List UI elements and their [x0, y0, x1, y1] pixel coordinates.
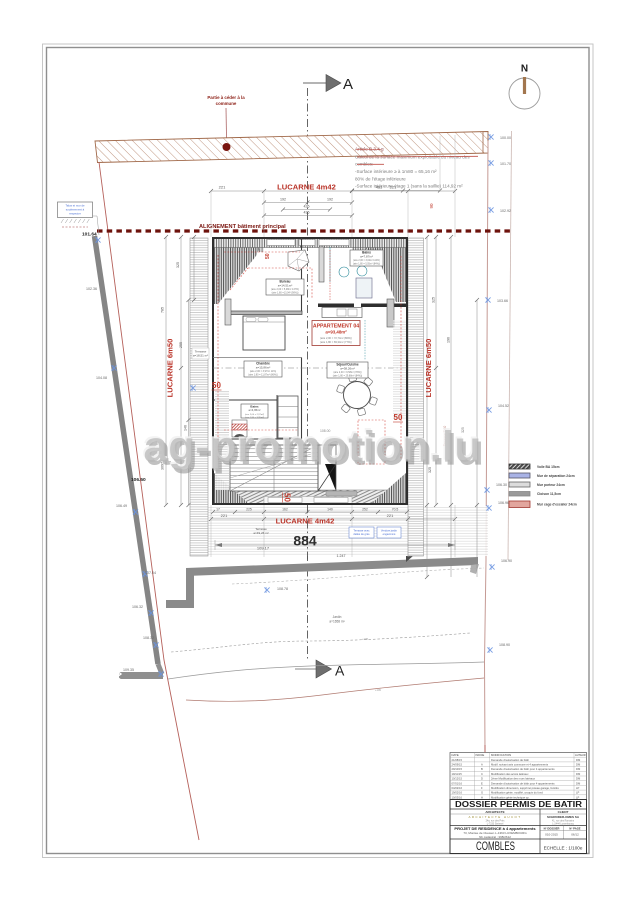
svg-text:ECHELLE : 1/100e: ECHELLE : 1/100e — [544, 846, 583, 851]
svg-text:2ème Modification des murs lat: 2ème Modification des murs latéraux — [491, 777, 536, 781]
svg-text:Voile BA 15cm: Voile BA 15cm — [537, 465, 560, 469]
svg-text:101.70: 101.70 — [500, 162, 511, 166]
svg-text:140: 140 — [327, 508, 333, 512]
svg-text:L-7333 Steinsel: L-7333 Steinsel — [487, 822, 504, 825]
svg-text:100.00: 100.00 — [500, 136, 511, 140]
svg-text:Verdure jardin: Verdure jardin — [381, 529, 398, 533]
svg-text:LUCARNE 6m50: LUCARNE 6m50 — [166, 339, 175, 398]
svg-text:252: 252 — [362, 508, 368, 512]
svg-text:Cloison 11,5cm: Cloison 11,5cm — [537, 492, 561, 496]
svg-text:06/12: 06/12 — [571, 833, 579, 837]
svg-text:+109: +109 — [375, 688, 381, 692]
svg-text:LP: LP — [576, 795, 579, 799]
svg-text:C: C — [481, 772, 483, 776]
svg-text:255: 255 — [179, 342, 183, 348]
svg-text:221: 221 — [221, 513, 228, 518]
svg-text:Mur de séparation 24cm: Mur de séparation 24cm — [537, 474, 575, 478]
svg-text:commune: commune — [216, 101, 237, 106]
svg-text:10/12/15: 10/12/15 — [452, 777, 463, 781]
svg-text:106.49: 106.49 — [116, 504, 127, 508]
svg-text:436: 436 — [304, 211, 310, 215]
svg-text:103.66: 103.66 — [497, 299, 508, 303]
svg-text:106.50: 106.50 — [131, 477, 146, 483]
svg-text:102.92: 102.92 — [500, 209, 511, 213]
svg-text:a=15,86m²: a=15,86m² — [256, 365, 270, 369]
svg-text:Modification dimension, suppri: Modification dimension, supprimé poteau … — [491, 786, 559, 790]
svg-text:MODIFICATION: MODIFICATION — [491, 753, 511, 757]
svg-text:dalles de grès: dalles de grès — [353, 532, 370, 536]
svg-text:426: 426 — [304, 205, 310, 209]
svg-text:Nb cadastral : 398/2612: Nb cadastral : 398/2612 — [479, 835, 511, 839]
svg-text:50: 50 — [283, 493, 292, 502]
svg-text:(aire 2,00 = 2,97m²): (aire 2,00 = 2,97m²) — [245, 413, 265, 416]
svg-text:a=7,87m²: a=7,87m² — [360, 254, 373, 258]
svg-text:221: 221 — [219, 185, 226, 190]
svg-text:325: 325 — [432, 297, 436, 303]
svg-text:L-2444 Luxembourg: L-2444 Luxembourg — [552, 822, 574, 825]
svg-text:a=18,51 m²: a=18,51 m² — [193, 354, 208, 358]
svg-text:1.247: 1.247 — [337, 554, 346, 558]
svg-text:Demande d'autorisation de bâti: Demande d'autorisation de bâtir pour 4 a… — [491, 781, 555, 785]
svg-text:COMBLES: COMBLES — [476, 841, 515, 853]
svg-text:LUCARNE 4m42: LUCARNE 4m42 — [276, 517, 335, 526]
svg-text:192: 192 — [280, 198, 286, 202]
svg-text:221: 221 — [387, 513, 394, 518]
svg-text:a=4,95m²: a=4,95m² — [249, 408, 261, 412]
svg-text:Demande d'autorisation de bâti: Demande d'autorisation de bâtir pour 4 a… — [491, 767, 555, 771]
svg-text:106.30: 106.30 — [496, 483, 507, 487]
svg-text:LUCARNE 4m42: LUCARNE 4m42 — [277, 183, 336, 192]
svg-text:a=14,51m²: a=14,51m² — [278, 283, 292, 287]
svg-text:Partie à céder à la: Partie à céder à la — [207, 95, 245, 100]
svg-text:785: 785 — [161, 307, 165, 313]
svg-text:(aire 1,80 =13,04² (90%)): (aire 1,80 =13,04² (90%)) — [272, 291, 299, 294]
svg-text:Modification génie technique o: Modification génie technique op. — [491, 795, 530, 799]
svg-text:a=38,26m²: a=38,26m² — [340, 366, 354, 370]
svg-text:H: H — [481, 795, 483, 799]
svg-text:50: 50 — [212, 381, 221, 390]
svg-text:21/08/15: 21/08/15 — [452, 758, 463, 762]
svg-text:Terrasse avec: Terrasse avec — [353, 529, 370, 533]
svg-text:108.32: 108.32 — [143, 636, 154, 640]
svg-text:+108: +108 — [362, 637, 368, 641]
svg-text:-Surface intérieure étage 1 (s: -Surface intérieure étage 1 (sans la sai… — [355, 183, 463, 188]
svg-text:19/02/16: 19/02/16 — [452, 791, 463, 795]
svg-text:a=93,48m²: a=93,48m² — [325, 330, 347, 335]
svg-text:a=1658 m²: a=1658 m² — [329, 620, 344, 624]
svg-text:-Surface intérieure ≥ à 1m80 =: -Surface intérieure ≥ à 1m80 = 65,16 m² — [355, 169, 437, 174]
svg-text:107.04: 107.04 — [145, 571, 156, 575]
svg-text:010-2015: 010-2015 — [545, 833, 558, 837]
svg-text:Mur porteur 24cm: Mur porteur 24cm — [537, 483, 565, 487]
svg-text:884: 884 — [293, 533, 317, 549]
svg-text:E: E — [481, 781, 483, 785]
svg-text:CLIENT: CLIENT — [558, 810, 569, 814]
svg-text:(aire 1,80 = 29,88m² (84%)): (aire 1,80 = 29,88m² (84%)) — [333, 374, 363, 377]
svg-text:ALIGNEMENT bâtiment principal: ALIGNEMENT bâtiment principal — [199, 224, 286, 230]
svg-text:106.90: 106.90 — [501, 559, 512, 563]
svg-text:A: A — [481, 763, 483, 767]
svg-text:LP: LP — [576, 786, 579, 790]
svg-text:19/11/15: 19/11/15 — [452, 772, 463, 776]
svg-text:N° PAGE: N° PAGE — [569, 826, 580, 830]
svg-text:90: 90 — [429, 203, 434, 209]
svg-text:102.36: 102.36 — [86, 287, 97, 291]
svg-text:N° DOSSIER: N° DOSSIER — [544, 826, 560, 830]
svg-text:07/01/16: 07/01/16 — [452, 781, 463, 785]
svg-text:29/10/15: 29/10/15 — [452, 767, 463, 771]
svg-text:325: 325 — [176, 262, 180, 268]
svg-text:24/09/15: 24/09/15 — [452, 763, 463, 767]
svg-text:50: 50 — [265, 253, 271, 259]
svg-text:Mur cage d'escalier 24cm: Mur cage d'escalier 24cm — [537, 503, 577, 507]
svg-text:AUTEUR: AUTEUR — [575, 753, 586, 757]
svg-text:106.96: 106.96 — [498, 501, 509, 505]
svg-text:(aire 2,00 = 3,02m² 110%): (aire 2,00 = 3,02m² 110%) — [353, 259, 380, 262]
svg-text:04/02/16: 04/02/16 — [452, 786, 463, 790]
svg-text:(aire 2,00 = 72,74m² (86%)): (aire 2,00 = 72,74m² (86%)) — [320, 336, 352, 340]
svg-text:101.64: 101.64 — [82, 232, 97, 238]
svg-text:(aire 1,80 = 5,05m² (84%)): (aire 1,80 = 5,05m² (84%)) — [353, 262, 380, 265]
svg-text:DATE: DATE — [452, 753, 459, 757]
svg-text:70.5: 70.5 — [392, 508, 399, 512]
svg-text:108.78: 108.78 — [277, 587, 288, 591]
svg-text:ARCHITECTE HUCOT: ARCHITECTE HUCOT — [468, 815, 521, 819]
svg-text:Modification des accès latérau: Modification des accès latéraux — [491, 772, 529, 776]
svg-text:(aire 1,80 = 3,95m²): (aire 1,80 = 3,95m²) — [245, 416, 265, 419]
svg-text:(aire 1,80 = 11,87m² (86%)): (aire 1,80 = 11,87m² (86%)) — [248, 373, 277, 376]
svg-text:Modification génie, modifié, c: Modification génie, modifié, croquis du … — [491, 791, 543, 795]
svg-text:192: 192 — [327, 198, 333, 202]
svg-text:104.08: 104.08 — [96, 376, 107, 380]
svg-text:DOSSIER PERMIS DE BATIR: DOSSIER PERMIS DE BATIR — [455, 800, 582, 809]
svg-text:Demande d'autorisation de bâti: Demande d'autorisation de bâtir — [491, 758, 529, 762]
svg-text:D: D — [481, 777, 483, 781]
svg-text:Modif. suivant avis commune et: Modif. suivant avis commune et 4 apparte… — [491, 763, 549, 767]
svg-text:LP: LP — [576, 791, 579, 795]
svg-text:SCHRODER-OMES SA: SCHRODER-OMES SA — [547, 815, 580, 819]
svg-text:17: 17 — [216, 508, 220, 512]
svg-text:G: G — [481, 791, 483, 795]
svg-text:196: 196 — [447, 337, 451, 343]
svg-text:respecter: respecter — [69, 212, 81, 216]
svg-text:108.90: 108.90 — [499, 643, 510, 647]
svg-text:B: B — [481, 767, 483, 771]
svg-text:109.35: 109.35 — [123, 668, 134, 672]
svg-text:N: N — [521, 64, 528, 75]
svg-text:162: 162 — [282, 508, 288, 512]
svg-text:A: A — [343, 76, 353, 93]
svg-text:LUCARNE 6m50: LUCARNE 6m50 — [424, 339, 433, 398]
svg-text:463: 463 — [376, 185, 383, 190]
svg-text:104.52: 104.52 — [498, 404, 509, 408]
svg-text:109.17: 109.17 — [257, 546, 270, 551]
svg-text:ag-promotion.lu: ag-promotion.lu — [144, 423, 482, 472]
svg-text:INDICE: INDICE — [476, 753, 485, 757]
svg-text:80% de l'étage inférieure: 80% de l'étage inférieure — [355, 176, 406, 181]
svg-text:Jardin: Jardin — [333, 615, 342, 619]
svg-text:221: 221 — [390, 185, 397, 190]
svg-text:ARCHITECTE: ARCHITECTE — [485, 810, 504, 814]
svg-text:engazonné: engazonné — [383, 532, 396, 536]
svg-text:225: 225 — [246, 508, 252, 512]
svg-text:10/03/16: 10/03/16 — [452, 795, 463, 799]
svg-text:(aire 1,80 = 83,34m² (77%)): (aire 1,80 = 83,34m² (77%)) — [320, 340, 352, 344]
svg-text:a=49,26 m²: a=49,26 m² — [253, 531, 268, 535]
svg-text:106.32: 106.32 — [132, 605, 143, 609]
